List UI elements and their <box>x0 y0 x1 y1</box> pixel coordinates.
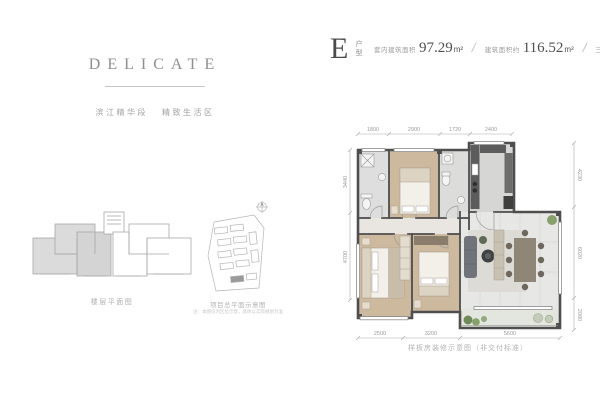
dim-bottom-2: 3200 <box>425 331 437 337</box>
indoor-area-value: 97.29 <box>419 40 453 57</box>
separator-slash-2: / <box>581 40 588 55</box>
rooms-description: 三室两厅两卫 <box>595 44 600 54</box>
key-plan-caption: 楼层平面图 <box>28 297 196 307</box>
dim-right-3: 2080 <box>576 309 582 321</box>
floor-plan-caption: 样板房装修示意图（非交付标准） <box>342 343 594 353</box>
north-arrow-icon <box>256 201 268 213</box>
building-key-plan <box>28 208 196 296</box>
dim-right-2: 6020 <box>576 247 582 259</box>
indoor-area-unit: m² <box>454 45 463 54</box>
dim-right-1: 4230 <box>576 169 582 181</box>
tagline-right: 精致生活区 <box>162 108 215 117</box>
main-floor-plan: 1800 2900 1720 2400 2500 3200 5600 3440 … <box>342 122 594 350</box>
dim-bottom-3: 5600 <box>504 331 516 337</box>
indoor-area-label: 套内建筑面积 <box>374 44 416 54</box>
dim-top-1: 1800 <box>367 127 379 133</box>
dim-bottom-1: 2500 <box>374 331 386 337</box>
site-plan-note: 注：本图仅为区位示意，具体以实际规划为准 <box>184 308 292 314</box>
unit-areas: 套内建筑面积 97.29 m² / 建筑面积约 116.52 m² / 三室两厅… <box>374 40 600 57</box>
dim-left-1: 3440 <box>343 176 349 188</box>
key-plan-outline <box>33 212 191 276</box>
site-plan <box>204 198 272 298</box>
unit-letter: E <box>330 34 348 64</box>
brand-title: DELICATE <box>55 56 255 74</box>
dim-top-2: 2900 <box>408 127 420 133</box>
tagline-left: 滨江精华段 <box>96 108 149 117</box>
dim-top-3: 1720 <box>449 127 461 133</box>
separator-slash: / <box>470 40 477 55</box>
floorplan-page: DELICATE 滨江精华段精致生活区 <box>0 0 600 402</box>
site-buildings <box>214 223 261 284</box>
brand-tagline: 滨江精华段精致生活区 <box>55 107 255 118</box>
unit-letter-label: 户型 <box>353 40 363 58</box>
site-highlighted-building <box>230 275 244 282</box>
plant-icon <box>547 215 557 225</box>
brand-divider <box>105 86 205 87</box>
gross-area-value: 116.52 <box>523 40 564 57</box>
hallway-floor <box>358 218 469 234</box>
dim-top-4: 2400 <box>485 127 497 133</box>
dim-left-2: 4700 <box>343 251 349 263</box>
gross-area-label: 建筑面积约 <box>485 44 520 54</box>
gross-area-unit: m² <box>564 45 573 54</box>
